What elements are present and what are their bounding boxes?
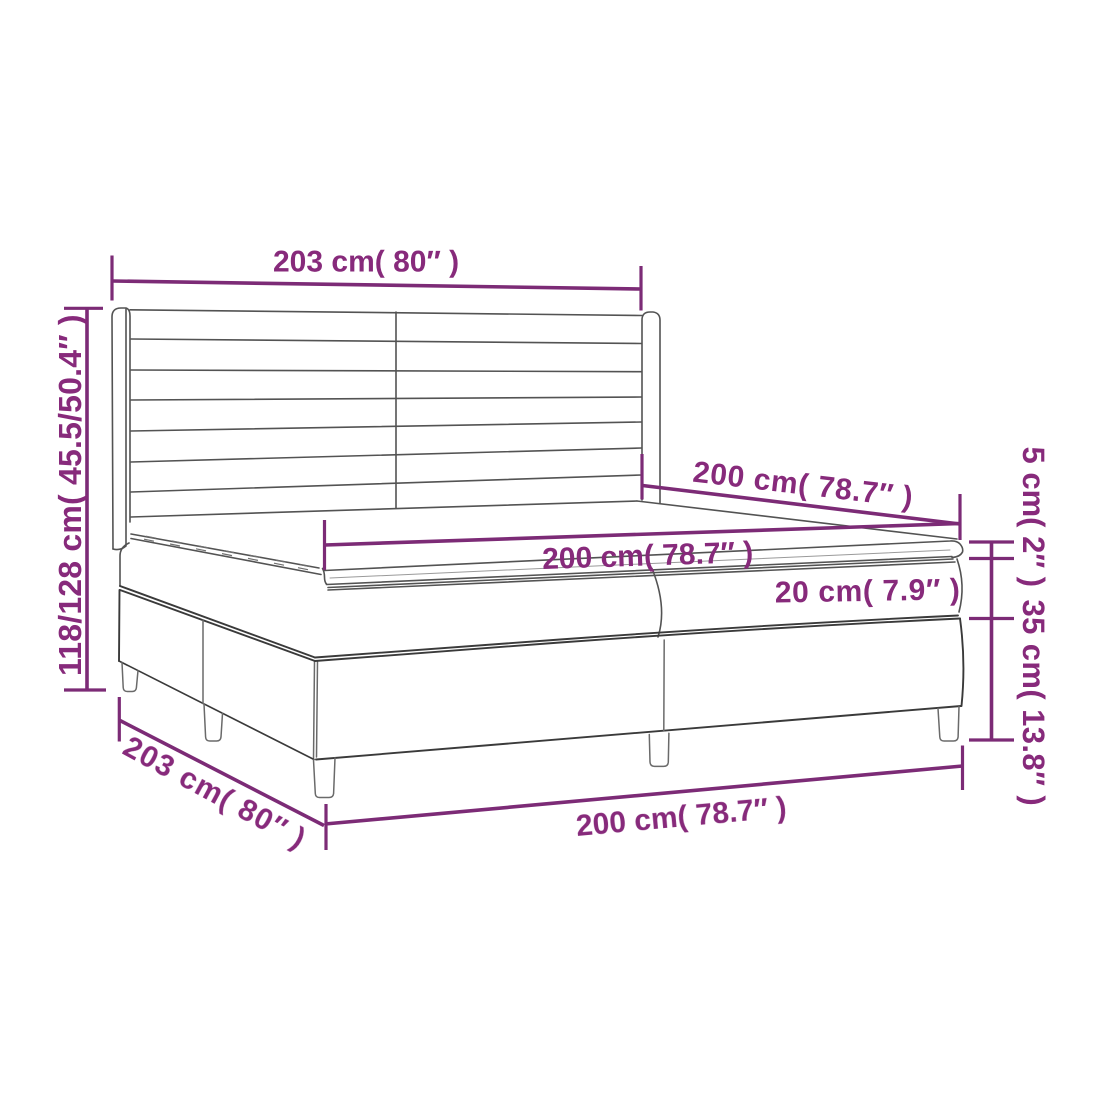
svg-text:5 cm( 2″ ): 5 cm( 2″ ) [1016,447,1051,588]
svg-text:200 cm( 78.7″ ): 200 cm( 78.7″ ) [542,536,754,576]
svg-text:203 cm( 80″ ): 203 cm( 80″ ) [273,246,459,279]
svg-text:118/128 cm( 45.5/50.4″ ): 118/128 cm( 45.5/50.4″ ) [52,314,88,676]
svg-text:35 cm( 13.8″ ): 35 cm( 13.8″ ) [1016,600,1051,807]
svg-text:20 cm( 7.9″ ): 20 cm( 7.9″ ) [775,573,961,609]
